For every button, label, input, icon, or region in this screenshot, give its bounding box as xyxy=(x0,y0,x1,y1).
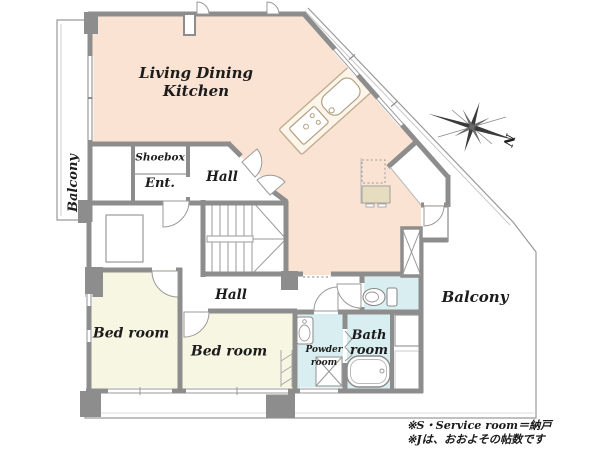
entrance-label: Ent. xyxy=(145,176,175,192)
toilet-fixture xyxy=(363,288,397,306)
top-wall-vent xyxy=(184,14,195,35)
hall-lower-label: Hall xyxy=(215,287,247,303)
bath-room-label: Bath room xyxy=(350,328,388,358)
ldk-top-door-2 xyxy=(267,2,279,14)
shoebox-label: Shoebox xyxy=(135,152,185,165)
ldk-label-line1: Living Dining xyxy=(139,64,253,82)
bath-room-label-line1: Bath xyxy=(350,328,388,343)
hall-upper-label: Hall xyxy=(206,169,238,185)
bedroom1-label: Bed room xyxy=(93,326,169,343)
counter-handle-2 xyxy=(378,204,386,207)
elevator-box xyxy=(106,215,143,262)
bath-side-closet xyxy=(395,315,419,346)
powder-room-door xyxy=(314,287,338,311)
ldk-top-door-1 xyxy=(197,2,209,14)
balcony-right-label: Balcony xyxy=(442,288,509,306)
footnotes: ※S・Service room＝納戸 ※Jは、おおよその帖数です xyxy=(407,419,552,446)
balcony-left-label: Balcony xyxy=(66,154,82,212)
stair-handrail xyxy=(207,236,253,242)
counter-handle-1 xyxy=(366,204,374,207)
toilet-door xyxy=(337,284,361,308)
powder-room-label-line1: Powder xyxy=(305,344,342,357)
footnote-line1: ※S・Service room＝納戸 xyxy=(407,419,552,433)
kitchen-counter xyxy=(362,186,390,203)
floor-plan-drawing xyxy=(0,0,600,450)
bedroom2-label: Bed room xyxy=(191,344,267,361)
railing-tick-1 xyxy=(349,54,355,59)
bath-side-lower-space xyxy=(395,351,419,389)
bathtub xyxy=(347,356,390,387)
bath-room-label-line2: room xyxy=(350,343,388,358)
ldk-label-line2: Kitchen xyxy=(139,82,253,100)
floor-plan: Living Dining Kitchen Balcony Shoebox En… xyxy=(0,0,600,450)
powder-room-label: Powder room xyxy=(305,344,342,370)
entrance-door xyxy=(163,201,189,227)
ldk-label: Living Dining Kitchen xyxy=(139,64,253,100)
duct-closet-x xyxy=(402,228,421,276)
powder-sink xyxy=(296,317,313,344)
footnote-line2: ※Jは、おおよその帖数です xyxy=(407,433,552,447)
powder-room-label-line2: room xyxy=(305,357,342,370)
